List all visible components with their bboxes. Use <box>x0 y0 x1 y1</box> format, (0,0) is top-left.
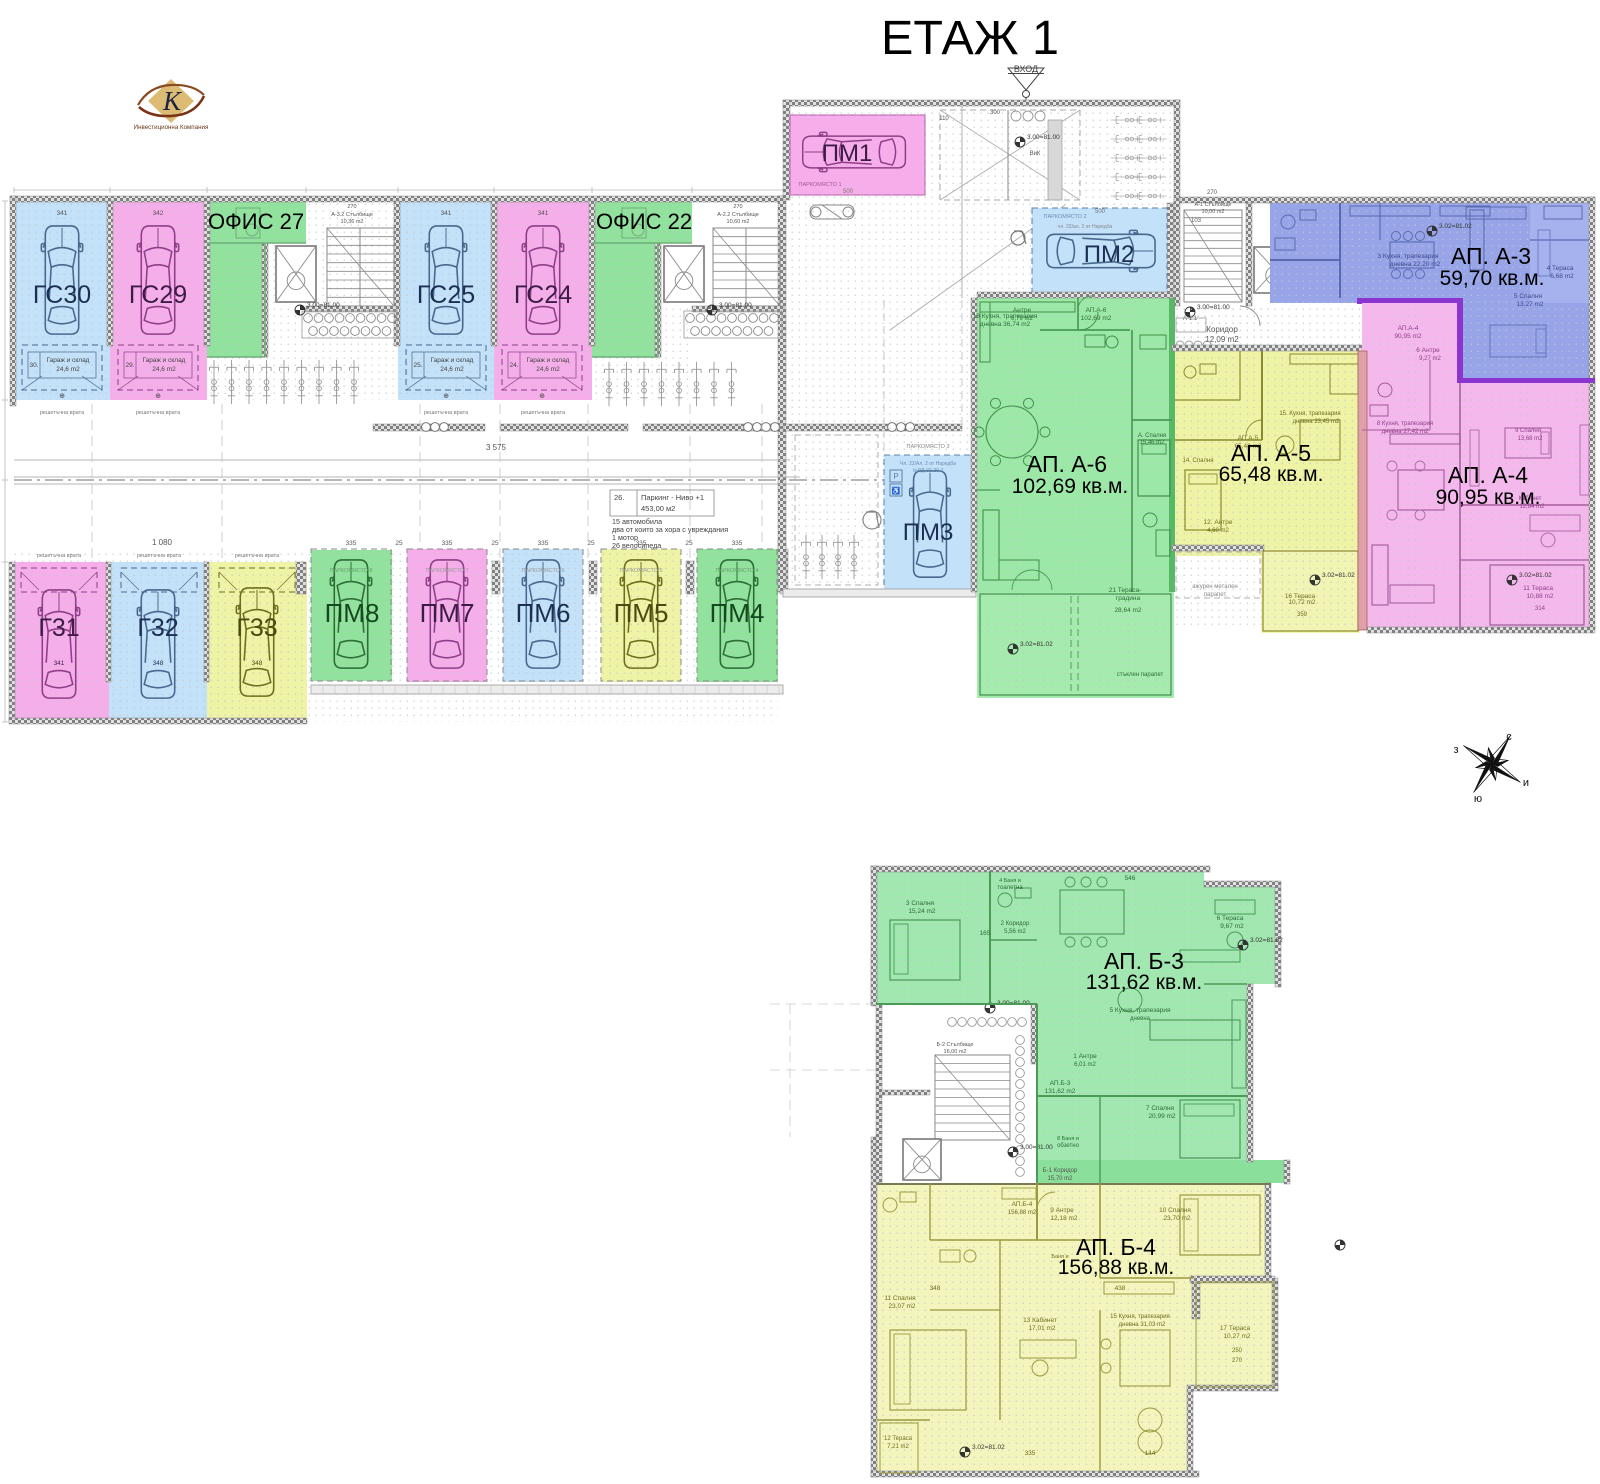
svg-text:144: 144 <box>1145 1450 1156 1457</box>
svg-text:270: 270 <box>733 204 742 210</box>
svg-text:6 Тераса: 6 Тераса <box>1217 915 1244 922</box>
svg-text:90,95 кв.м.: 90,95 кв.м. <box>1436 486 1541 509</box>
svg-text:чл. 22/ал. 2 от Наредба: чл. 22/ал. 2 от Наредба <box>1058 224 1113 230</box>
svg-text:ГС24: ГС24 <box>514 281 572 309</box>
svg-text:25: 25 <box>587 540 595 547</box>
svg-text:11 Тераса: 11 Тераса <box>1523 585 1553 592</box>
svg-text:ПМ7: ПМ7 <box>420 598 475 628</box>
svg-text:12 Тераса: 12 Тераса <box>884 1436 913 1442</box>
svg-text:Г32: Г32 <box>137 614 178 642</box>
svg-text:дневна: дневна <box>1130 1016 1151 1022</box>
svg-text:Б-1 Коридор: Б-1 Коридор <box>1043 1168 1078 1174</box>
svg-text:ГС30: ГС30 <box>33 281 91 309</box>
svg-text:3.02=81.02: 3.02=81.02 <box>1250 937 1283 944</box>
svg-text:ПАРКОМЯСТО 5: ПАРКОМЯСТО 5 <box>619 568 662 574</box>
svg-text:5 Кухня, трапезария: 5 Кухня, трапезария <box>1110 1007 1171 1014</box>
svg-text:7 Спалня: 7 Спалня <box>1146 1105 1175 1112</box>
svg-text:12,18 m2: 12,18 m2 <box>1050 1215 1077 1222</box>
svg-text:ПАРКОМЯСТО 7: ПАРКОМЯСТО 7 <box>425 568 468 574</box>
svg-text:Паркинг - Ниво +1: Паркинг - Ниво +1 <box>641 493 704 502</box>
svg-text:и: и <box>1523 777 1529 789</box>
svg-text:обзетно: обзетно <box>1057 1143 1080 1149</box>
svg-text:24,6 m2: 24,6 m2 <box>56 366 80 373</box>
svg-text:270: 270 <box>1232 1358 1243 1364</box>
svg-text:3.02=81.02: 3.02=81.02 <box>1439 223 1472 230</box>
svg-text:АП.А-4: АП.А-4 <box>1398 325 1419 332</box>
svg-text:решетъчна врата: решетъчна врата <box>521 410 566 416</box>
svg-text:ВХОД: ВХОД <box>1014 64 1038 74</box>
svg-text:дневна 31,03 m2: дневна 31,03 m2 <box>1119 1322 1166 1328</box>
svg-text:17 Тераса: 17 Тераса <box>1220 1325 1251 1332</box>
svg-text:ПАРКОМЯСТО 8: ПАРКОМЯСТО 8 <box>329 568 372 574</box>
svg-text:з: з <box>1453 744 1458 756</box>
svg-text:3.02=81.02: 3.02=81.02 <box>972 1444 1005 1451</box>
svg-text:А-1 Стълбище: А-1 Стълбище <box>1195 202 1232 208</box>
svg-text:АП. А-6: АП. А-6 <box>1027 451 1107 477</box>
svg-text:ПМ1: ПМ1 <box>822 140 873 167</box>
svg-text:ПАРКОМЯСТО 1: ПАРКОМЯСТО 1 <box>798 182 841 188</box>
svg-text:ПМ6: ПМ6 <box>516 598 571 628</box>
svg-text:102,69 m2: 102,69 m2 <box>1081 315 1112 322</box>
svg-text:АП.Б-4: АП.Б-4 <box>1012 1201 1033 1208</box>
svg-text:Гараж и склад: Гараж и склад <box>47 357 90 364</box>
svg-text:тоалетна: тоалетна <box>997 885 1023 891</box>
svg-text:АП. А-3: АП. А-3 <box>1451 243 1531 269</box>
svg-text:25: 25 <box>395 540 403 547</box>
svg-text:решетъчна врата: решетъчна врата <box>136 410 181 416</box>
svg-text:23,70 m2: 23,70 m2 <box>1163 1215 1190 1222</box>
svg-text:341: 341 <box>441 210 452 217</box>
svg-text:АП. А-4: АП. А-4 <box>1448 462 1528 488</box>
svg-text:300: 300 <box>990 110 1001 116</box>
svg-text:3.00=81.00: 3.00=81.00 <box>1027 134 1060 141</box>
svg-text:250: 250 <box>1232 1348 1243 1354</box>
svg-text:Г33: Г33 <box>236 614 277 642</box>
svg-text:7,21 m2: 7,21 m2 <box>887 1444 909 1450</box>
svg-text:11 Спалня: 11 Спалня <box>884 1295 916 1302</box>
svg-text:102,69 кв.м.: 102,69 кв.м. <box>1012 475 1129 498</box>
svg-text:335: 335 <box>732 540 743 547</box>
svg-text:9 Спалня: 9 Спалня <box>1515 428 1541 434</box>
svg-text:16,00 m2: 16,00 m2 <box>944 1049 967 1055</box>
svg-text:15,46 m2: 15,46 m2 <box>1139 440 1165 446</box>
svg-text:АП.Б-3: АП.Б-3 <box>1050 1080 1071 1087</box>
svg-text:5 Спалня: 5 Спалня <box>1514 293 1543 300</box>
svg-text:дневна 22,20 m2: дневна 22,20 m2 <box>1390 261 1441 268</box>
svg-text:Гараж и склад: Гараж и склад <box>527 357 570 364</box>
svg-text:решетъчна врата: решетъчна врата <box>137 553 182 559</box>
svg-text:5,56 m2: 5,56 m2 <box>1004 929 1026 935</box>
svg-text:1 080: 1 080 <box>152 538 173 547</box>
svg-text:ПАРКОМЯСТО 6: ПАРКОМЯСТО 6 <box>521 568 564 574</box>
svg-text:10,72 m2: 10,72 m2 <box>1288 599 1315 606</box>
svg-text:359: 359 <box>1297 612 1308 618</box>
svg-text:131,62 кв.м.: 131,62 кв.м. <box>1086 971 1203 994</box>
svg-text:15. Кухня, трапезария: 15. Кухня, трапезария <box>1279 411 1340 417</box>
svg-text:P: P <box>893 472 898 481</box>
svg-text:8 Баня и: 8 Баня и <box>1057 1136 1079 1142</box>
svg-text:ПАРКОМЯСТО 4: ПАРКОМЯСТО 4 <box>715 568 758 574</box>
svg-text:6 Антре: 6 Антре <box>1416 347 1440 354</box>
svg-text:3 Кухня, трапезария: 3 Кухня, трапезария <box>1378 253 1439 260</box>
svg-text:13,27 m2: 13,27 m2 <box>1516 301 1543 308</box>
svg-text:270: 270 <box>347 204 356 210</box>
svg-text:решетъчна врата: решетъчна врата <box>37 553 82 559</box>
svg-text:10,88 m2: 10,88 m2 <box>1526 593 1553 600</box>
svg-text:3 575: 3 575 <box>486 443 507 452</box>
svg-text:А. Спалня: А. Спалня <box>1138 433 1166 439</box>
svg-text:28,64 m2: 28,64 m2 <box>1114 607 1141 614</box>
svg-text:ПАРКОМЯСТО 2: ПАРКОМЯСТО 2 <box>1043 214 1086 220</box>
svg-text:348: 348 <box>153 660 164 667</box>
svg-text:29.: 29. <box>125 362 134 369</box>
svg-text:10,60 m2: 10,60 m2 <box>727 219 750 225</box>
svg-text:⊕: ⊕ <box>443 393 449 400</box>
svg-text:8 Кухня, трапезария: 8 Кухня, трапезария <box>1377 421 1433 427</box>
svg-text:ГС29: ГС29 <box>129 281 187 309</box>
svg-text:9,67 m2: 9,67 m2 <box>1220 923 1244 930</box>
svg-text:ю: ю <box>1474 793 1482 805</box>
svg-text:ПМ2: ПМ2 <box>1084 241 1135 268</box>
svg-text:3.00=81.00: 3.00=81.00 <box>307 302 340 309</box>
svg-text:№РД-02-20-2: №РД-02-20-2 <box>913 468 944 474</box>
svg-text:9 Антре: 9 Антре <box>1050 1207 1074 1214</box>
svg-text:65,48 кв.м.: 65,48 кв.м. <box>1219 463 1324 486</box>
svg-text:156,88 m2: 156,88 m2 <box>1008 1210 1037 1216</box>
svg-text:500: 500 <box>1095 209 1106 215</box>
svg-text:335: 335 <box>346 540 357 547</box>
svg-text:14. Спалня: 14. Спалня <box>1183 458 1214 464</box>
svg-text:2 Коридор: 2 Коридор <box>1001 921 1030 927</box>
svg-text:⊕: ⊕ <box>539 393 545 400</box>
svg-text:K: K <box>162 86 183 116</box>
svg-text:Гараж и склад: Гараж и склад <box>431 357 474 364</box>
svg-text:ВиК: ВиК <box>1030 151 1041 157</box>
svg-text:4,60 m2: 4,60 m2 <box>1207 528 1229 534</box>
svg-text:23,07 m2: 23,07 m2 <box>888 1303 915 1310</box>
svg-text:156,88 кв.м.: 156,88 кв.м. <box>1058 1256 1175 1279</box>
svg-text:341: 341 <box>54 660 65 667</box>
svg-text:341: 341 <box>538 210 549 217</box>
svg-text:♿: ♿ <box>892 486 901 495</box>
svg-text:Г31: Г31 <box>38 614 79 642</box>
svg-text:8,79 m2: 8,79 m2 <box>1011 316 1033 322</box>
svg-text:165: 165 <box>980 930 991 937</box>
svg-text:12. Антре: 12. Антре <box>1204 519 1233 526</box>
svg-text:24,6 m2: 24,6 m2 <box>152 366 176 373</box>
svg-text:ОФИС 22: ОФИС 22 <box>596 209 692 234</box>
svg-text:6,01 m2: 6,01 m2 <box>1074 1062 1096 1068</box>
svg-text:10 Спалня: 10 Спалня <box>1159 1207 1191 1214</box>
svg-text:решетъчна врата: решетъчна врата <box>235 553 280 559</box>
svg-text:546: 546 <box>1125 875 1136 882</box>
svg-text:335: 335 <box>1025 1450 1036 1457</box>
svg-text:13 Кабинет: 13 Кабинет <box>1023 1316 1057 1324</box>
svg-text:15,24 m2: 15,24 m2 <box>908 908 935 915</box>
svg-text:ПМ5: ПМ5 <box>614 598 669 628</box>
svg-text:Инвестиционна Компания: Инвестиционна Компания <box>134 124 209 131</box>
svg-text:270: 270 <box>1207 190 1218 196</box>
svg-text:с: с <box>1506 731 1512 743</box>
svg-text:Гараж и склад: Гараж и склад <box>143 357 186 364</box>
svg-text:градина: градина <box>1116 595 1141 602</box>
svg-text:335: 335 <box>538 540 549 547</box>
svg-text:131,62 m2: 131,62 m2 <box>1045 1088 1076 1095</box>
svg-text:3.02=81.02: 3.02=81.02 <box>1020 641 1053 648</box>
svg-text:А-3.2 Стълбище: А-3.2 Стълбище <box>331 212 373 218</box>
svg-text:Антре: Антре <box>1013 307 1032 314</box>
svg-text:438: 438 <box>1115 1285 1126 1292</box>
svg-text:10,36 m2: 10,36 m2 <box>341 219 364 225</box>
svg-text:А-2.2 Стълбище: А-2.2 Стълбище <box>717 212 759 218</box>
svg-text:6,68 m2: 6,68 m2 <box>1550 273 1574 280</box>
svg-text:26.: 26. <box>614 493 624 502</box>
svg-text:341: 341 <box>57 210 68 217</box>
svg-text:25.: 25. <box>413 362 422 369</box>
svg-text:10,27 m2: 10,27 m2 <box>1223 1333 1250 1340</box>
svg-text:335: 335 <box>636 540 647 547</box>
svg-text:3.02=81.02: 3.02=81.02 <box>1322 572 1355 579</box>
svg-text:110: 110 <box>939 116 949 122</box>
svg-text:314: 314 <box>1535 606 1546 612</box>
svg-text:342: 342 <box>153 210 164 217</box>
svg-text:парапет: парапет <box>1204 592 1227 598</box>
svg-text:90,95 m2: 90,95 m2 <box>1394 333 1421 340</box>
svg-text:15,70 m2: 15,70 m2 <box>1047 1176 1073 1182</box>
svg-text:решетъчна врата: решетъчна врата <box>424 410 469 416</box>
svg-text:500: 500 <box>843 189 854 195</box>
svg-text:4 Тераса: 4 Тераса <box>1547 265 1574 272</box>
svg-text:30.: 30. <box>29 362 38 369</box>
svg-text:453,00 м2: 453,00 м2 <box>641 504 675 513</box>
svg-text:Чл. 22/Ал. 2 от Наредба: Чл. 22/Ал. 2 от Наредба <box>900 461 956 467</box>
svg-text:дневна 27,42 m2: дневна 27,42 m2 <box>1382 429 1429 435</box>
svg-text:решетъчна врата: решетъчна врата <box>40 410 85 416</box>
svg-text:335: 335 <box>442 540 453 547</box>
svg-text:АП.А-6: АП.А-6 <box>1086 307 1107 314</box>
svg-text:348: 348 <box>930 1285 941 1292</box>
svg-text:24,6 m2: 24,6 m2 <box>440 366 464 373</box>
svg-text:13,68 m2: 13,68 m2 <box>1517 436 1543 442</box>
svg-text:3.02=81.02: 3.02=81.02 <box>1519 572 1552 579</box>
svg-text:25: 25 <box>491 540 499 547</box>
svg-text:59,70 кв.м.: 59,70 кв.м. <box>1440 267 1545 290</box>
svg-text:1 Антре: 1 Антре <box>1073 1053 1097 1060</box>
svg-text:21 Тераса-: 21 Тераса- <box>1109 587 1142 594</box>
svg-text:24,6 m2: 24,6 m2 <box>536 366 560 373</box>
svg-text:20,99 m2: 20,99 m2 <box>1148 1113 1175 1120</box>
svg-text:ПМ4: ПМ4 <box>710 598 765 628</box>
svg-text:15 Кухня, трапезария: 15 Кухня, трапезария <box>1110 1314 1170 1320</box>
svg-text:⊕: ⊕ <box>59 393 65 400</box>
svg-text:24.: 24. <box>509 362 518 369</box>
svg-text:25: 25 <box>685 540 693 547</box>
svg-text:3 Спалня: 3 Спалня <box>906 900 935 907</box>
svg-text:ажурен метален: ажурен метален <box>1192 584 1237 590</box>
svg-text:4 Баня и: 4 Баня и <box>999 878 1021 884</box>
svg-text:стъклен парапет: стъклен парапет <box>1117 672 1164 678</box>
svg-text:ПАРКОМЯСТО 3: ПАРКОМЯСТО 3 <box>906 444 949 450</box>
svg-text:348: 348 <box>252 660 263 667</box>
svg-text:ЕТАЖ 1: ЕТАЖ 1 <box>881 11 1059 65</box>
svg-text:103: 103 <box>1191 218 1202 224</box>
svg-text:ОФИС 27: ОФИС 27 <box>208 209 304 234</box>
svg-text:9,27 m2: 9,27 m2 <box>1419 356 1441 362</box>
svg-text:Б-2 Стълбище: Б-2 Стълбище <box>937 1042 974 1048</box>
svg-text:дневна 23,45 m2: дневна 23,45 m2 <box>1293 419 1340 425</box>
svg-text:дневна 36,74 m2: дневна 36,74 m2 <box>980 321 1031 328</box>
svg-text:ГС25: ГС25 <box>417 281 475 309</box>
svg-text:10,00 m2: 10,00 m2 <box>1202 209 1225 215</box>
svg-text:3.00=81.00: 3.00=81.00 <box>719 302 752 309</box>
svg-text:17,01 m2: 17,01 m2 <box>1028 1325 1055 1332</box>
svg-text:ПМ3: ПМ3 <box>903 519 954 546</box>
svg-text:⊕: ⊕ <box>155 393 161 400</box>
svg-text:ПМ8: ПМ8 <box>325 598 380 628</box>
